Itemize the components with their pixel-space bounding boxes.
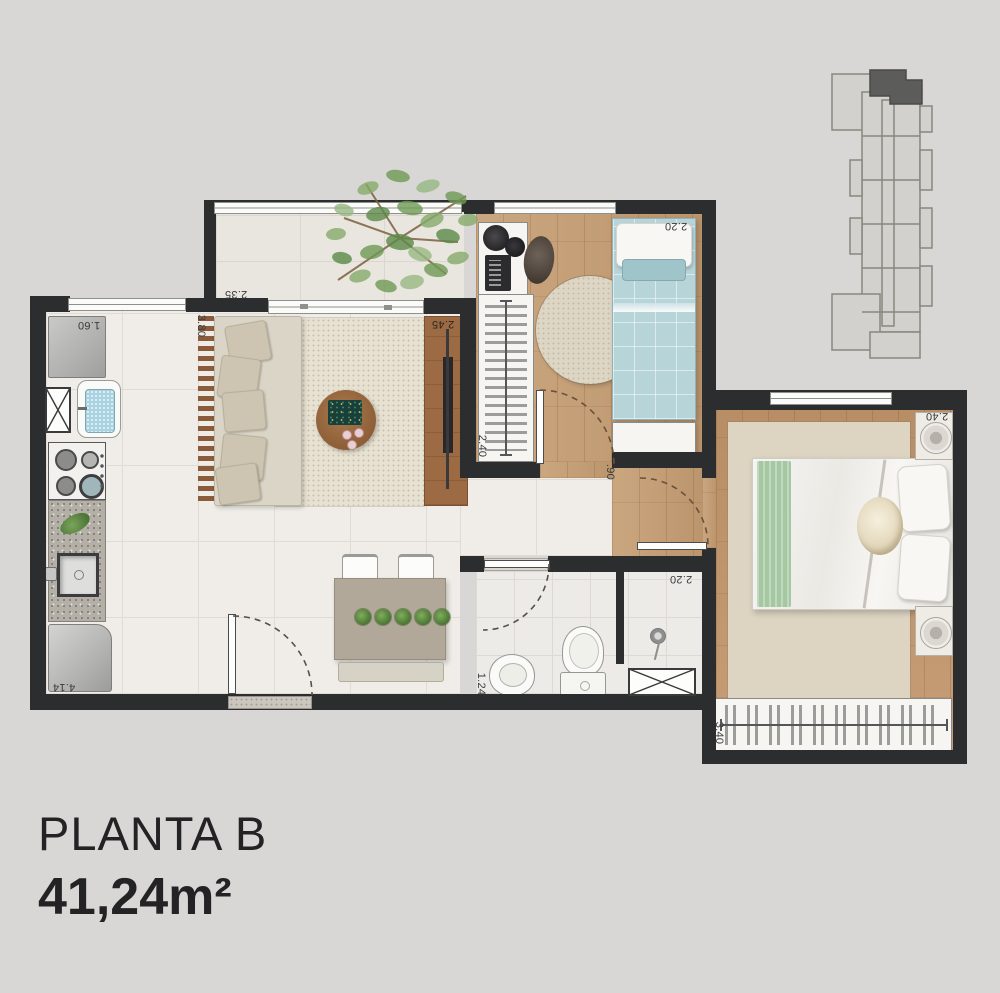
kitchen-counter bbox=[48, 500, 106, 622]
wall-left-outer bbox=[30, 296, 46, 710]
bathroom-door-leaf bbox=[484, 560, 550, 568]
dining-bench bbox=[338, 662, 444, 682]
sofa-pillow bbox=[221, 389, 266, 433]
balcony-floor bbox=[216, 212, 464, 308]
dim-living-length: 2.45 bbox=[432, 318, 455, 330]
fluffy-pillow bbox=[857, 497, 903, 555]
dim-balcony: 2.35 bbox=[225, 288, 248, 300]
burner bbox=[55, 449, 77, 471]
bath-sink-bowl bbox=[499, 663, 527, 687]
counter-plant bbox=[57, 508, 93, 538]
bath-sink bbox=[489, 654, 535, 696]
dim-kitchen-length: 4.14 bbox=[53, 681, 76, 693]
wall-bottom-outer bbox=[30, 694, 712, 710]
single-bed bbox=[612, 218, 696, 420]
burner bbox=[81, 451, 99, 469]
tv-base bbox=[446, 329, 449, 489]
slat-divider bbox=[198, 316, 214, 506]
burner bbox=[56, 476, 76, 496]
toilet-seat bbox=[569, 633, 599, 669]
coffee-cup bbox=[342, 430, 352, 440]
entrance-door-leaf bbox=[228, 614, 236, 694]
closet-rod bbox=[505, 301, 507, 455]
balcony-sliding-door bbox=[268, 300, 424, 314]
table-plant bbox=[434, 609, 450, 625]
table-plant bbox=[355, 609, 371, 625]
toilet-bowl bbox=[562, 626, 604, 676]
passage-floor bbox=[460, 476, 612, 556]
dim-bedroom2-width: 2.40 bbox=[926, 410, 949, 422]
stove bbox=[48, 442, 106, 500]
dining-table bbox=[334, 578, 446, 660]
bedroom1-door-leaf bbox=[536, 390, 544, 464]
bed-accent-pillow bbox=[622, 259, 686, 281]
nightstand bbox=[915, 606, 953, 656]
table-lamp bbox=[920, 617, 952, 649]
dim-bathroom: 1.24 bbox=[475, 673, 487, 696]
bed-throw-green bbox=[757, 461, 791, 607]
sliding-door-handle bbox=[384, 305, 392, 310]
dim-bedroom1-closet: 2.40 bbox=[476, 435, 488, 458]
wall-bath-top-left bbox=[460, 556, 484, 572]
coffee-table bbox=[316, 390, 376, 450]
closet-rod-end bbox=[500, 454, 512, 456]
table-plant bbox=[395, 609, 411, 625]
wall-bedroom1-bottom bbox=[460, 462, 540, 478]
bed-pillow bbox=[897, 463, 951, 532]
toilet-tank bbox=[560, 672, 606, 696]
closet-rod-end bbox=[500, 300, 512, 302]
counter-sink bbox=[57, 553, 99, 597]
title-block: PLANTA B 41,24m² bbox=[38, 806, 267, 927]
wall-shower-divider bbox=[616, 572, 624, 664]
laptop-keys bbox=[489, 260, 501, 286]
counter-drain bbox=[74, 570, 84, 580]
dim-kitchen-width: 1.60 bbox=[78, 319, 101, 331]
table-lamp bbox=[920, 422, 952, 454]
laptop bbox=[485, 255, 511, 291]
counter-faucet bbox=[45, 567, 57, 581]
bed-fold bbox=[613, 303, 695, 312]
table-plant bbox=[375, 609, 391, 625]
shaft-box bbox=[45, 387, 71, 433]
bedroom2-door-threshold bbox=[702, 478, 716, 548]
entrance-threshold bbox=[228, 696, 312, 709]
plan-area: 41,24m² bbox=[38, 867, 267, 927]
closet-rod-end bbox=[946, 719, 948, 731]
dim-bedroom1-width: 2.20 bbox=[665, 220, 688, 232]
bed-pillow bbox=[897, 533, 951, 602]
wall-bedroom2-bottom bbox=[702, 750, 967, 764]
bedroom1-door-threshold bbox=[540, 462, 612, 478]
kitchen-sink-basin bbox=[85, 389, 115, 433]
coffee-cup bbox=[347, 440, 357, 450]
bedroom2-door-leaf bbox=[637, 542, 707, 550]
sliding-door-handle bbox=[300, 304, 308, 309]
balcony-railing bbox=[214, 202, 462, 214]
kitchen-sink bbox=[77, 380, 121, 438]
wall-hall-top bbox=[612, 452, 712, 468]
bedroom2-window bbox=[770, 392, 892, 405]
desk bbox=[478, 222, 528, 296]
kitchen-window bbox=[68, 298, 186, 311]
toilet-button bbox=[580, 681, 590, 691]
sofa bbox=[214, 316, 302, 506]
double-bed bbox=[752, 458, 953, 610]
dim-bedroom2-closet: 3.40 bbox=[713, 722, 725, 745]
closet-rod bbox=[721, 724, 947, 726]
building-key-plan bbox=[824, 62, 974, 364]
coffee-table-tray bbox=[328, 400, 362, 425]
wall-top-mid bbox=[186, 298, 268, 312]
wall-bedroom2-right bbox=[953, 390, 967, 764]
dim-shower: 2.20 bbox=[670, 573, 693, 585]
stove-knobs bbox=[99, 451, 105, 493]
toilet bbox=[560, 626, 606, 698]
plan-name: PLANTA B bbox=[38, 806, 267, 861]
wall-living-bedroom1 bbox=[460, 300, 476, 462]
shaft-box bbox=[628, 668, 696, 696]
wall-bedroom2-left-upper bbox=[702, 200, 716, 478]
coffee-cup bbox=[354, 428, 364, 438]
wall-balcony-left bbox=[204, 200, 216, 312]
dim-living-width: 3.80 bbox=[195, 315, 207, 338]
dim-hall-door: .90 bbox=[604, 464, 616, 480]
kitchen-faucet bbox=[78, 407, 87, 410]
wall-bath-top-right bbox=[548, 556, 712, 572]
sofa-pillow bbox=[215, 462, 262, 505]
floor-plan: 2.35 1.60 3.80 2.45 2.20 2.40 .90 2.20 1… bbox=[0, 0, 1000, 993]
table-plant bbox=[415, 609, 431, 625]
bedroom1-window bbox=[494, 202, 616, 214]
bedroom2-closet bbox=[714, 698, 952, 752]
desk-chair-back bbox=[505, 237, 525, 257]
